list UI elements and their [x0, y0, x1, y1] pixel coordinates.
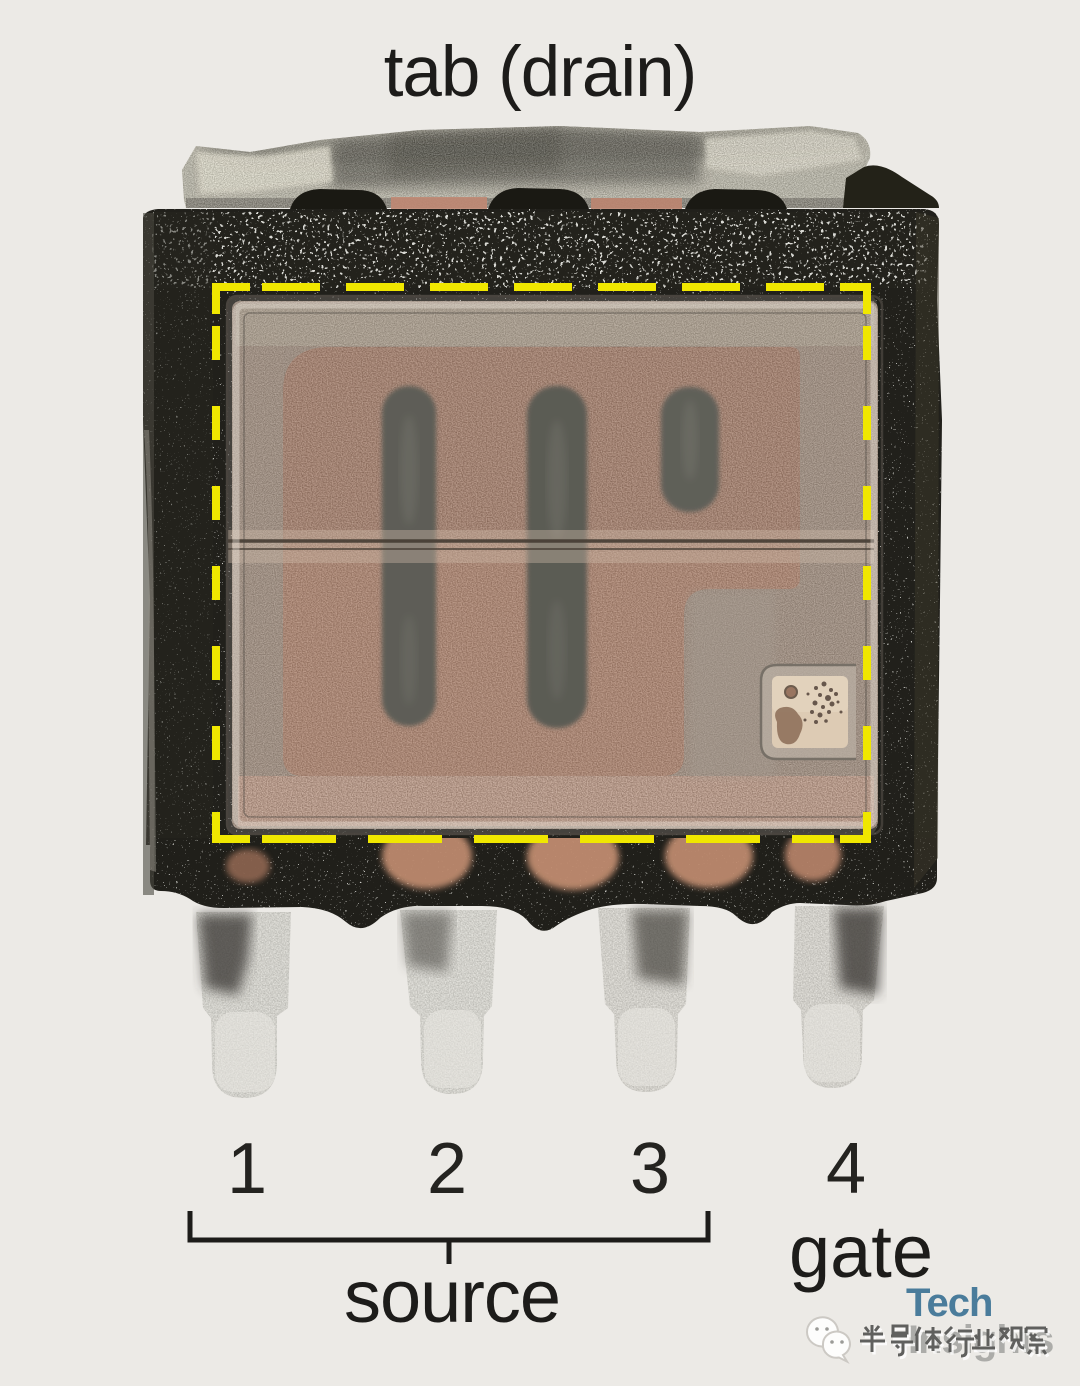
svg-text:source: source — [344, 1255, 560, 1338]
svg-text:tab (drain): tab (drain) — [384, 33, 697, 112]
svg-text:3: 3 — [630, 1129, 670, 1209]
svg-text:1: 1 — [227, 1129, 267, 1209]
svg-text:4: 4 — [826, 1129, 866, 1209]
svg-text:2: 2 — [427, 1129, 467, 1209]
svg-text:Tech: Tech — [906, 1281, 992, 1325]
